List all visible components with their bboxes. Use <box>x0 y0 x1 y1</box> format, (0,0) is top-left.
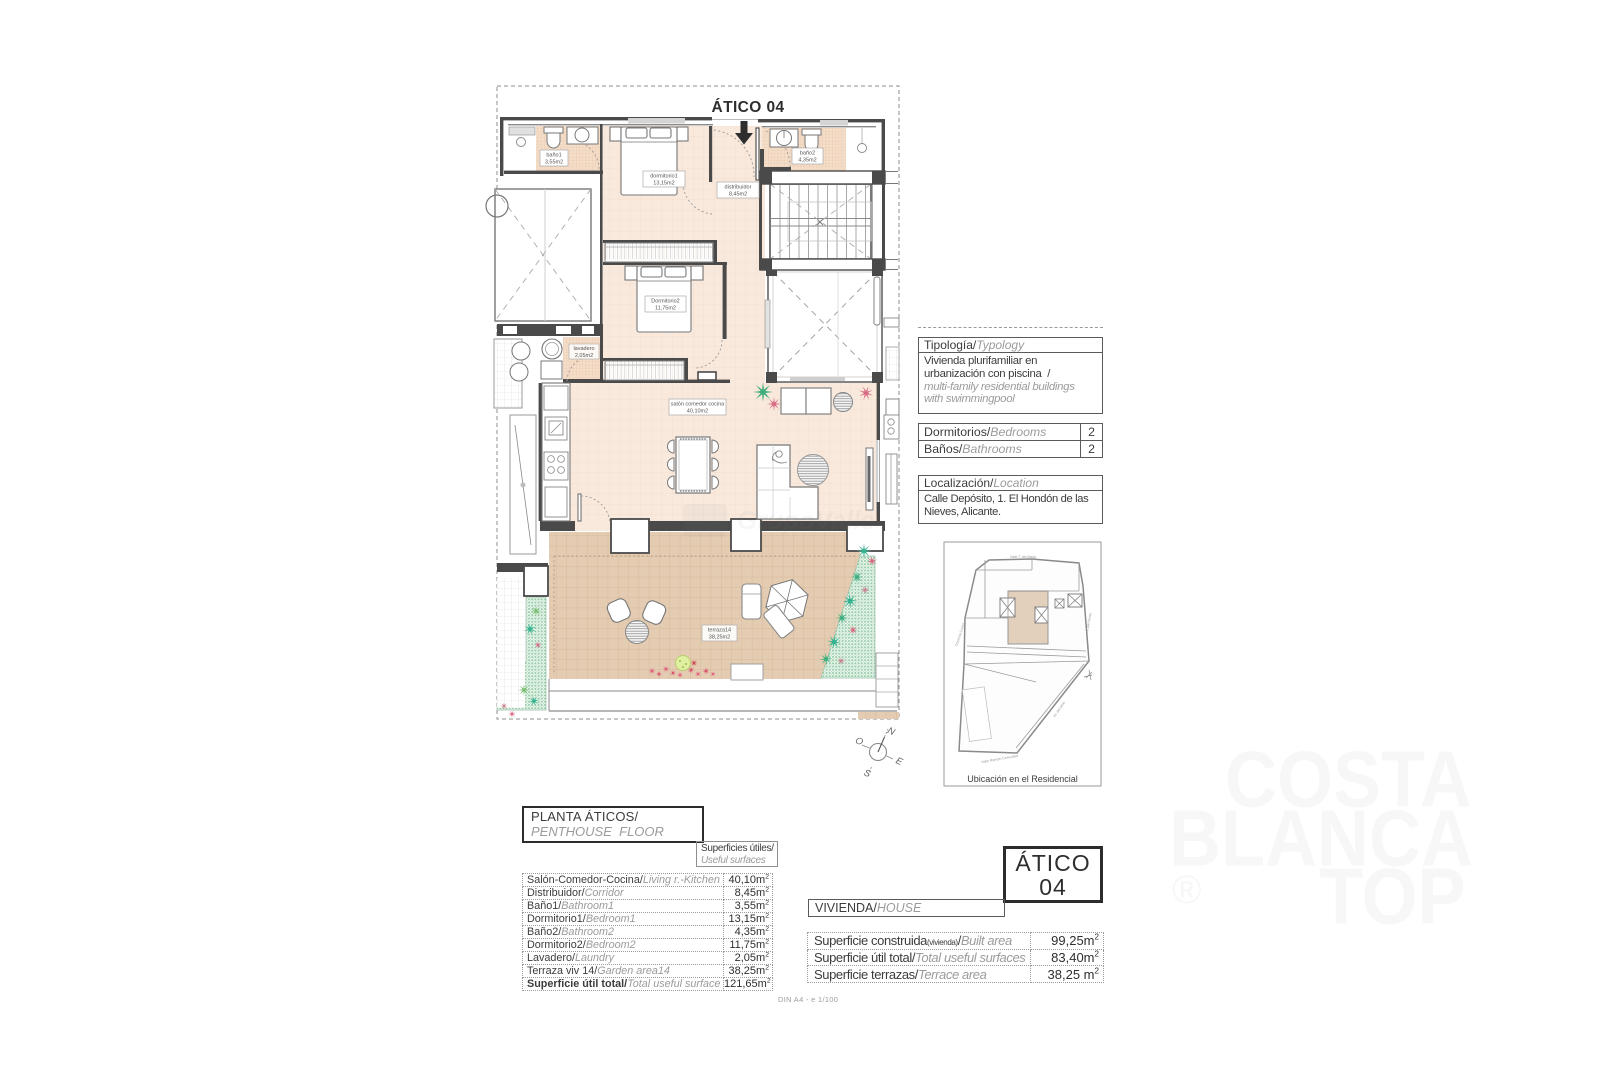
svg-text:S: S <box>862 767 873 780</box>
svg-text:N: N <box>886 725 897 738</box>
svg-text:Dormitorio2: Dormitorio2 <box>651 299 679 305</box>
svg-text:lavadero: lavadero <box>573 346 594 352</box>
svg-text:4,35m2: 4,35m2 <box>798 158 816 164</box>
svg-text:distribuidor: distribuidor <box>725 185 752 191</box>
svg-text:baño1: baño1 <box>546 153 561 159</box>
svg-text:Ubicación en el Residencial: Ubicación en el Residencial <box>967 774 1078 784</box>
svg-text:13,15m2: 13,15m2 <box>653 181 674 187</box>
svg-text:11,75m2: 11,75m2 <box>655 306 676 312</box>
svg-text:terraza14: terraza14 <box>708 628 731 634</box>
svg-text:2,05m2: 2,05m2 <box>575 353 593 359</box>
svg-text:dormitorio1: dormitorio1 <box>650 174 678 180</box>
svg-text:salón comedor cocina: salón comedor cocina <box>671 402 725 408</box>
svg-text:38,25m2: 38,25m2 <box>709 635 730 641</box>
svg-text:40,10m2: 40,10m2 <box>687 409 708 415</box>
svg-text:E: E <box>894 755 905 768</box>
svg-text:8,45m2: 8,45m2 <box>729 192 747 198</box>
svg-text:O: O <box>853 735 865 748</box>
svg-text:GrupoValle: GrupoValle <box>737 505 875 535</box>
svg-text:baño2: baño2 <box>800 151 815 157</box>
svg-text:ÁTICO 04: ÁTICO 04 <box>712 99 785 116</box>
svg-text:3,55m2: 3,55m2 <box>545 160 563 166</box>
